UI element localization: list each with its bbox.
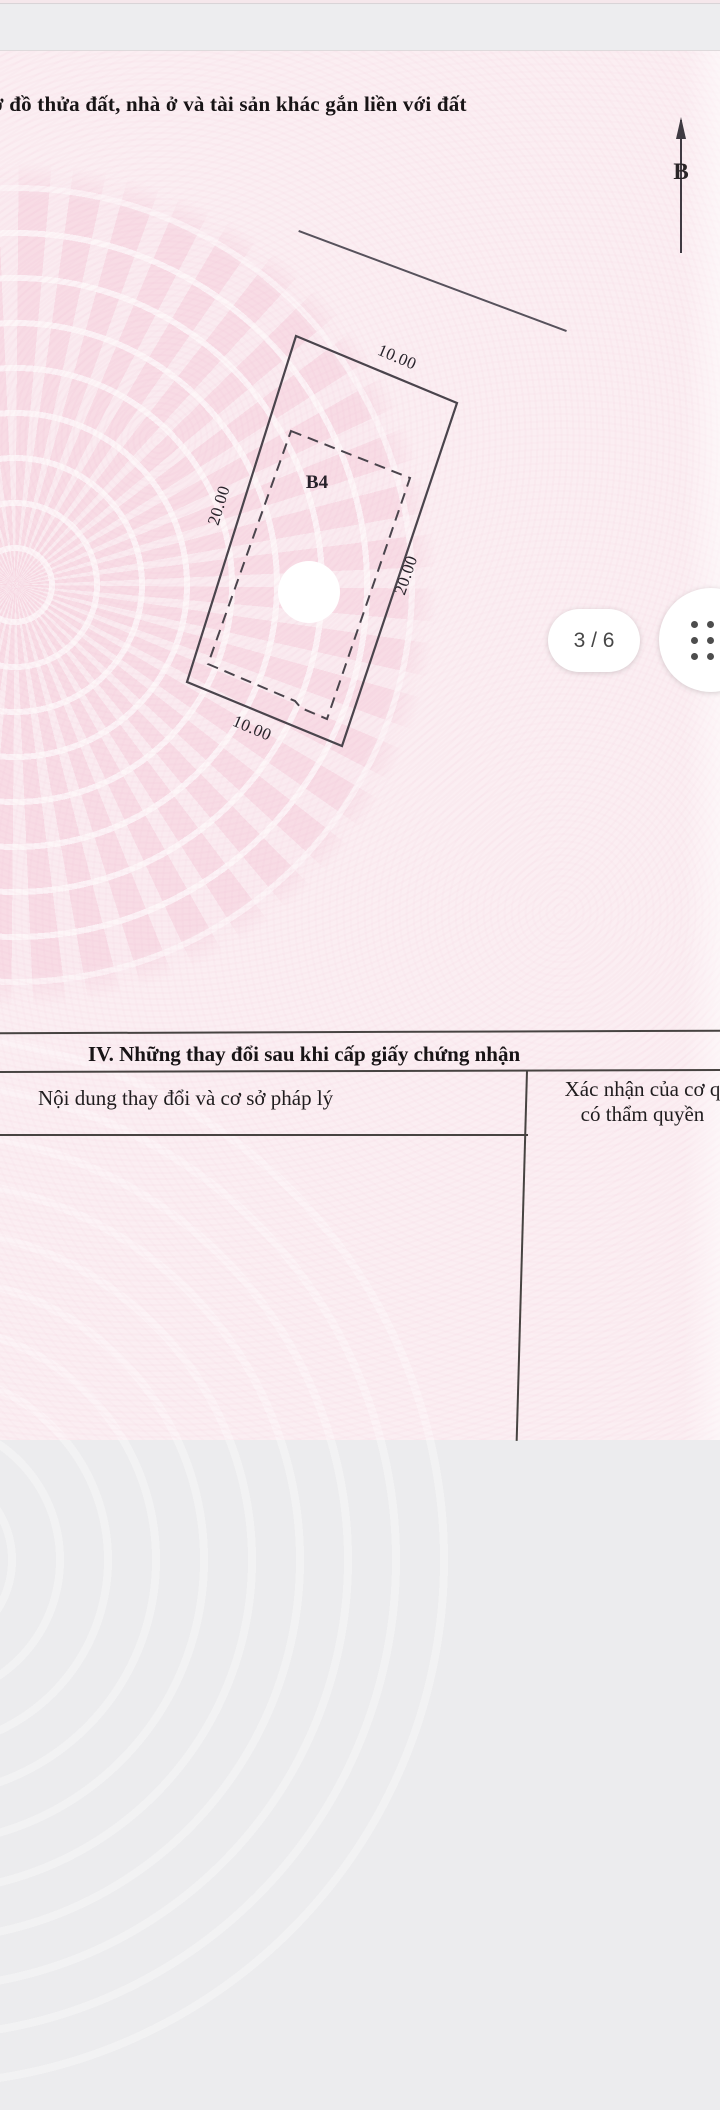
table-top-border (0, 1030, 720, 1035)
page-indicator-badge: 3 / 6 (548, 609, 640, 672)
dimension-left: 20.00 (204, 483, 234, 527)
dimension-top: 10.00 (375, 340, 419, 373)
table-col1-header-underline (0, 1134, 528, 1136)
grid-dot (707, 621, 714, 628)
parcel-outer-boundary (187, 336, 457, 746)
document-title: ơ đồ thửa đất, nhà ở và tài sản khác gắn… (0, 92, 467, 117)
section-iv-title: IV. Những thay đổi sau khi cấp giấy chứn… (88, 1042, 520, 1067)
grid-dots-icon (691, 621, 720, 660)
grid-dot (691, 653, 698, 660)
page-indicator-text: 3 / 6 (574, 629, 615, 653)
table-column-divider (516, 1071, 528, 1441)
table-header-border (0, 1069, 720, 1073)
grid-dot (707, 637, 714, 644)
redaction-circle (278, 561, 340, 623)
table-col2-header-line1: Xác nhận của cơ q (545, 1077, 720, 1102)
certificate-page: ơ đồ thửa đất, nhà ở và tài sản khác gắn… (0, 51, 720, 1440)
grid-dot (707, 653, 714, 660)
table-col1-header: Nội dung thay đổi và cơ sở pháp lý (38, 1086, 333, 1111)
watermark-arcs-bottom (0, 1010, 470, 2110)
grid-dot (691, 621, 698, 628)
dimension-right: 20.00 (390, 553, 421, 597)
grid-dot (691, 637, 698, 644)
page-gap (0, 5, 720, 51)
photo-viewer: ơ đồ thửa đất, nhà ở và tài sản khác gắn… (0, 0, 720, 1440)
north-label: B (673, 159, 688, 184)
parcel-diagram: 10.00 20.00 20.00 10.00 B4 (150, 300, 490, 770)
table-col2-header: Xác nhận của cơ q có thẩm quyền (545, 1077, 720, 1127)
parcel-label: B4 (306, 472, 329, 493)
previous-page-edge (0, 0, 720, 4)
screenshot-root: { "viewer": { "page_indicator": "3 / 6" … (0, 0, 720, 1440)
table-col2-header-line2: có thẩm quyền (545, 1102, 720, 1127)
north-arrow: B (655, 105, 711, 265)
